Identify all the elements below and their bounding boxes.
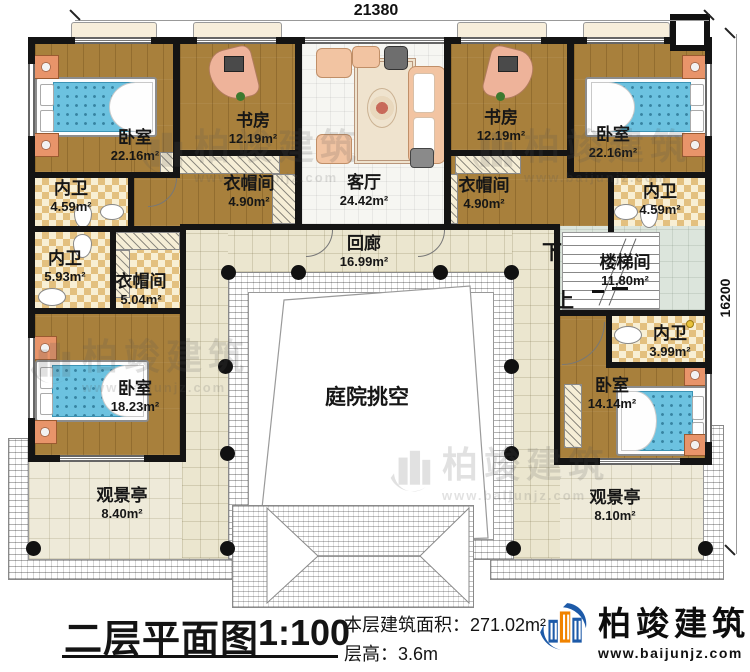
dimension-tick	[724, 544, 735, 555]
rug	[354, 58, 416, 164]
desk-top	[204, 43, 261, 105]
column-dot	[504, 265, 519, 280]
floor-area-label: 本层建筑面积：271.02m²	[344, 611, 546, 637]
coffee-table	[410, 148, 434, 168]
room-label-bath-ml: 内卫 5.93m²	[44, 249, 85, 285]
nightstand	[33, 55, 59, 79]
watermark: 柏竣建筑 www.baijunjz.com	[140, 118, 362, 185]
scale-label: 1:100	[258, 612, 350, 654]
pillow	[40, 110, 54, 132]
nightstand	[33, 133, 59, 157]
window	[705, 374, 712, 442]
window	[600, 458, 680, 465]
stair-dash	[592, 290, 604, 293]
dimension-tick	[69, 9, 80, 20]
nightstand	[33, 420, 57, 444]
brand-url: www.baijunjz.com	[598, 645, 750, 661]
wall	[606, 316, 612, 362]
pillow	[690, 84, 704, 106]
corridor-floor-right	[512, 226, 560, 558]
room-label-stairwell: 楼梯间 11.80m²	[600, 253, 651, 289]
wall	[444, 44, 451, 230]
desk	[210, 48, 254, 98]
watermark: 柏竣建筑 www.baijunjz.com	[388, 436, 610, 503]
plant	[236, 92, 245, 101]
sink	[38, 288, 66, 306]
watermark: 柏竣建筑 www.baijunjz.com	[470, 118, 692, 185]
column-dot	[221, 265, 236, 280]
watermark-logo-icon	[470, 126, 516, 178]
stair-down-label: 下	[542, 236, 562, 265]
column-dot	[504, 359, 519, 374]
room-label-courtyard: 庭院挑空	[325, 385, 409, 410]
brand-logo: 柏竣建筑 www.baijunjz.com	[536, 597, 750, 661]
armchair	[352, 46, 380, 68]
room-label-pavilion-l: 观景亭 8.40m²	[97, 486, 148, 522]
wardrobe-rack	[114, 232, 180, 250]
side-table	[384, 46, 408, 70]
room-label-corridor: 回廊 16.99m²	[340, 234, 388, 270]
watermark-logo-icon	[28, 336, 74, 388]
window	[587, 37, 664, 44]
column-dot	[506, 541, 521, 556]
room-label-closet-ml: 衣帽间 5.04m²	[116, 272, 167, 308]
armchair	[316, 48, 352, 78]
column-dot	[220, 541, 235, 556]
pillow	[690, 110, 704, 132]
pillow	[40, 393, 53, 415]
desk	[486, 48, 530, 98]
window	[75, 37, 151, 44]
desk-top	[480, 43, 537, 105]
porch-roof-ridges	[232, 505, 472, 606]
wall	[28, 226, 186, 232]
nightstand	[684, 434, 706, 456]
floor-plan: 21380 16200	[0, 0, 750, 672]
wall	[28, 308, 186, 314]
pillow	[40, 84, 54, 106]
room-label-bath-mr: 内卫 3.99m²	[649, 324, 690, 360]
window	[305, 37, 444, 44]
room-label-bedroom-br: 卧室 14.14m²	[588, 376, 636, 412]
dimension-right-label: 16200	[717, 267, 733, 329]
title-underline	[62, 655, 338, 658]
sink	[614, 326, 642, 344]
column-dot	[433, 265, 448, 280]
column-dot	[220, 446, 235, 461]
wall	[180, 224, 560, 230]
room-label-bath-tl: 内卫 4.59m²	[50, 179, 91, 215]
sink	[614, 204, 638, 220]
window	[197, 37, 276, 44]
wall	[554, 310, 712, 316]
brand-logo-icon	[536, 597, 590, 655]
stair-up-label: 上	[554, 284, 574, 313]
dimension-tick	[724, 27, 735, 38]
plant	[496, 92, 505, 101]
pillow	[692, 396, 704, 420]
dimension-line-right	[736, 34, 737, 554]
dimension-line-top	[75, 20, 709, 21]
rug-medallion	[367, 88, 397, 128]
dimension-top-label: 21380	[340, 2, 412, 20]
wall	[608, 178, 614, 232]
wall	[128, 178, 134, 232]
watermark-logo-icon	[140, 126, 186, 178]
monitor	[224, 56, 244, 72]
column-dot	[26, 541, 41, 556]
watermark-logo-icon	[388, 444, 434, 496]
floor-height-label: 层高：3.6m	[344, 640, 438, 666]
column-dot	[698, 541, 713, 556]
room-label-bath-tr: 内卫 4.59m²	[639, 182, 680, 218]
wall	[606, 362, 712, 368]
sofa-cushion	[413, 73, 435, 113]
brand-name: 柏竣建筑	[598, 597, 750, 645]
watermark: 柏竣建筑 www.baijunjz.com	[28, 328, 250, 395]
column-dot	[291, 265, 306, 280]
window	[60, 455, 144, 462]
monitor	[498, 56, 518, 72]
window	[28, 64, 35, 136]
window	[461, 37, 541, 44]
sink	[100, 204, 124, 220]
window	[705, 64, 712, 136]
